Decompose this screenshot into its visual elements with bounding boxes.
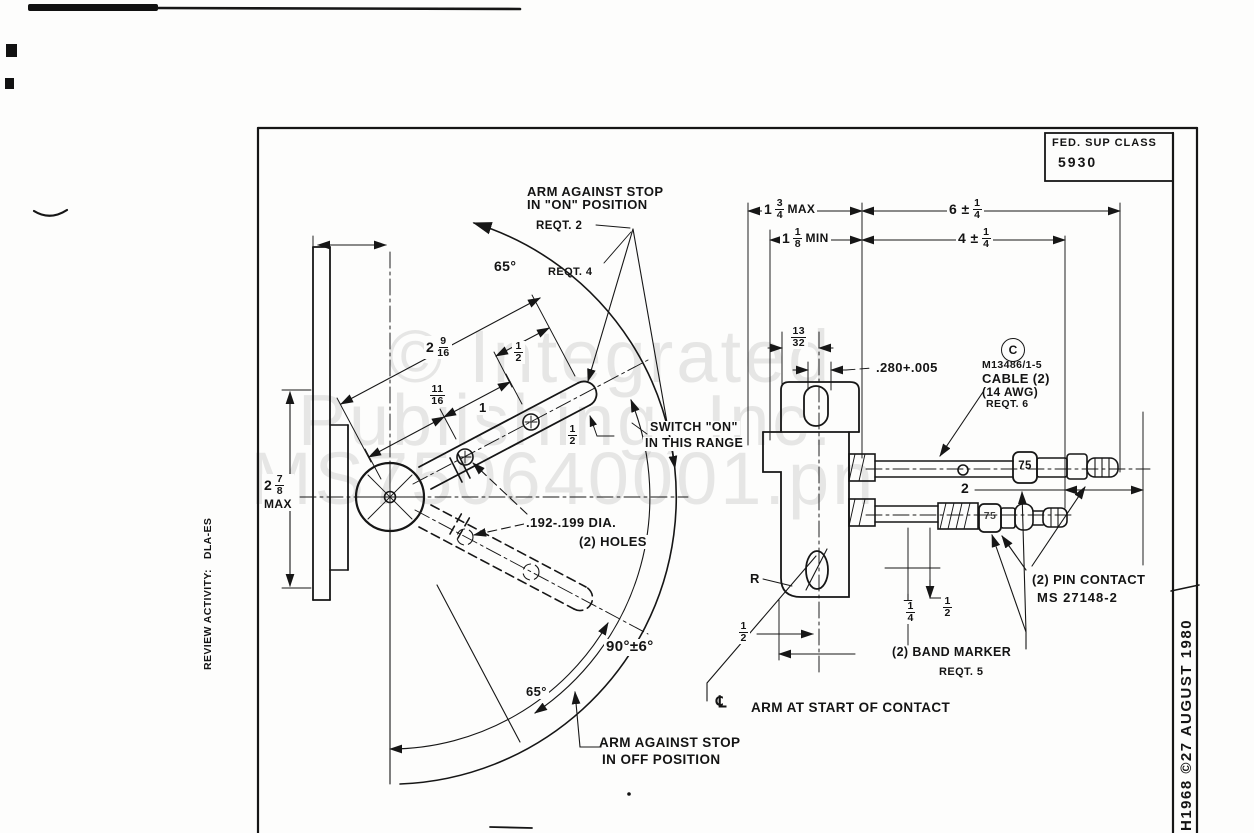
dim-suffix: MAX <box>264 498 292 511</box>
callout-cable-reqt6: REQT. 6 <box>986 399 1028 411</box>
dim-suffix: MIN <box>805 232 828 245</box>
dim-1-2-tip: 12 <box>566 424 579 447</box>
cable-contacts <box>866 452 1150 532</box>
callout-reqt4: REQT. 4 <box>548 266 592 278</box>
radius-label: R <box>750 572 760 586</box>
denominator: 16 <box>431 396 443 407</box>
denominator: 2 <box>516 353 522 364</box>
denominator: 2 <box>945 608 951 619</box>
scan-artifacts <box>5 4 631 796</box>
angle-65-bottom: 65° <box>524 685 549 699</box>
dim-suffix: MAX <box>787 203 815 216</box>
dim-1-3-4-max: 1 34 MAX <box>762 198 817 221</box>
callout-switch-on-line2: IN THIS RANGE <box>643 437 745 451</box>
dim-whole: 2 <box>426 340 434 355</box>
callout-band-marker: (2) BAND MARKER <box>892 646 1011 660</box>
denominator: 16 <box>437 348 449 359</box>
fraction: 916 <box>437 336 449 359</box>
engineering-drawing-sheet: © Integrated Publishing, Inc. MS75064000… <box>0 0 1254 833</box>
callout-pin-contact-line1: (2) PIN CONTACT <box>1032 573 1145 587</box>
dim-1-4-offset: 14 <box>904 601 917 624</box>
denominator: 8 <box>277 486 283 497</box>
fraction: 34 <box>775 198 784 221</box>
band75-bottom: 75 <box>981 511 999 523</box>
fraction: 78 <box>275 474 284 497</box>
dim-prefix: 6 ± <box>949 202 970 217</box>
dim-2-9-16: 2 916 <box>424 336 452 359</box>
dim-2-inches: 2 <box>959 481 971 496</box>
fraction: 12 <box>568 424 577 447</box>
dim-whole: 1 <box>764 202 772 217</box>
fraction: 1332 <box>791 326 806 349</box>
fraction: 14 <box>982 227 991 250</box>
drawing-linework <box>0 0 1254 833</box>
denominator: 2 <box>741 633 747 644</box>
callout-holes-line2: (2) HOLES <box>577 535 649 549</box>
date-stamp: H1968 ©27 AUGUST 1980 <box>1179 619 1196 831</box>
fraction: 1116 <box>430 384 445 407</box>
fraction: 14 <box>906 601 915 624</box>
dim-4-plus-1-4: 4 ± 14 <box>956 227 993 250</box>
denominator: 8 <box>795 239 801 250</box>
dim-1-2-arm: 12 <box>512 341 525 364</box>
switch-side-view <box>763 332 875 672</box>
fraction: 12 <box>514 341 523 364</box>
denominator: 4 <box>974 210 980 221</box>
callout-pin-contact-line2: MS 27148-2 <box>1037 591 1118 605</box>
callout-arm-on-line2: IN "ON" POSITION <box>527 198 648 212</box>
dim-1-2-offset: 12 <box>941 596 954 619</box>
centerline-symbol: ℄ <box>716 694 727 712</box>
callout-band-reqt5: REQT. 5 <box>939 666 983 678</box>
callout-holes-line1: .192-.199 DIA. <box>524 516 618 530</box>
angle-65-top: 65° <box>494 259 516 274</box>
review-activity-stamp: REVIEW ACTIVITY: DLA-ES <box>203 518 215 670</box>
circled-c-letter: C <box>1009 343 1018 357</box>
fraction: 14 <box>973 198 982 221</box>
denominator: 4 <box>908 613 914 624</box>
dim-whole: 2 <box>264 478 272 493</box>
dim-1-holes: 1 <box>477 401 489 415</box>
callout-arm-contact: ARM AT START OF CONTACT <box>751 701 950 716</box>
dim-prefix: 4 ± <box>958 231 979 246</box>
callout-switch-on-line1: SWITCH "ON" <box>648 421 740 435</box>
swing-arcs <box>390 223 676 784</box>
callout-reqt2: REQT. 2 <box>536 220 582 233</box>
dim-1-2-slot: 12 <box>737 621 750 644</box>
dim-whole: 1 <box>782 231 790 246</box>
dim-value-row: 2 78 <box>264 474 284 497</box>
fed-sup-class-label: FED. SUP CLASS <box>1052 137 1157 149</box>
band75-top: 75 <box>1015 460 1035 473</box>
denominator: 4 <box>777 210 783 221</box>
dim-2-7-8-max: 2 78 MAX <box>262 474 294 511</box>
dim-6-plus-1-4: 6 ± 14 <box>947 198 984 221</box>
denominator: 4 <box>983 239 989 250</box>
callout-arm-off-line1: ARM AGAINST STOP <box>599 736 740 751</box>
dim-1-1-8-min: 1 18 MIN <box>780 227 831 250</box>
callout-arm-off-line2: IN OFF POSITION <box>602 753 721 768</box>
fraction: 18 <box>793 227 802 250</box>
leader-lines <box>473 225 1085 747</box>
fed-sup-class-value: 5930 <box>1058 155 1097 170</box>
angle-90: 90°±6° <box>604 639 656 656</box>
denominator: 32 <box>793 338 805 349</box>
bracket-front-view <box>300 247 688 784</box>
dim-11-16: 1116 <box>428 384 447 407</box>
denominator: 2 <box>570 436 576 447</box>
dim-13-32: 1332 <box>789 326 808 349</box>
callout-cable-spec: M13486/1-5 <box>982 360 1042 372</box>
dimension-lines-left <box>282 236 614 588</box>
fraction: 12 <box>943 596 952 619</box>
frame-border <box>258 128 1199 833</box>
dim-slot-280: .280+.005 <box>874 361 940 375</box>
fraction: 12 <box>739 621 748 644</box>
